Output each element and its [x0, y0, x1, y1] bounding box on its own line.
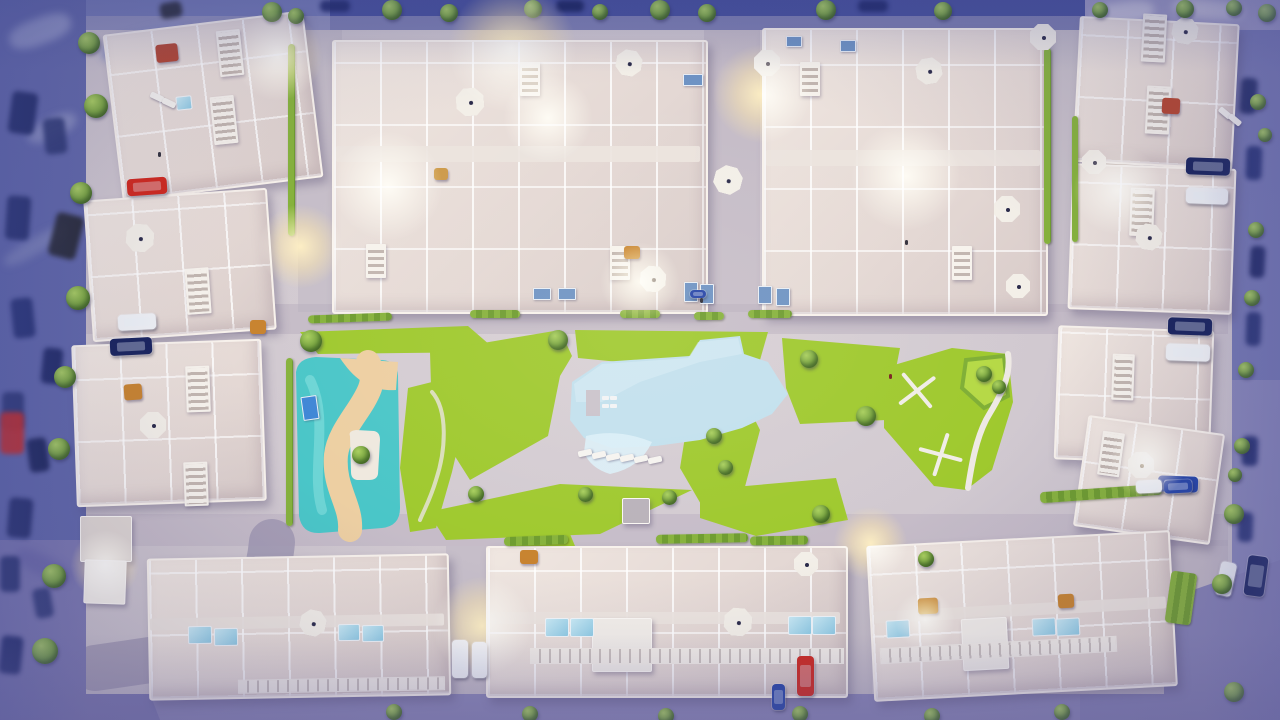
carb-sprite: [159, 0, 183, 20]
lounger-sprite: [578, 449, 593, 458]
table-sprite: [624, 246, 640, 259]
tree-sprite: [1212, 574, 1232, 594]
tree-sprite: [66, 286, 90, 310]
car-sprite: [110, 337, 153, 356]
tree-sprite: [1248, 222, 1264, 238]
carb-sprite: [10, 297, 36, 339]
tree-sprite: [1258, 128, 1272, 142]
hedge-sprite: [750, 535, 808, 545]
tree-sprite: [352, 446, 370, 464]
tree-sprite: [32, 638, 58, 664]
tree-sprite: [1224, 504, 1244, 524]
table-sprite: [520, 550, 538, 564]
hedge-sprite: [748, 310, 792, 318]
umb-sprite: [1128, 452, 1154, 478]
carb-sprite: [1245, 146, 1262, 181]
tree-sprite: [1234, 438, 1250, 454]
lounger-sprite: [592, 451, 607, 460]
tree-sprite: [1092, 2, 1108, 18]
step-sprite: [610, 396, 617, 400]
stair-sprite: [520, 62, 540, 96]
walk-sprite: [766, 150, 1040, 166]
tree-sprite: [468, 486, 484, 502]
stair-sprite: [952, 246, 972, 280]
car-sprite: [1164, 479, 1193, 493]
lounger-sprite: [620, 454, 635, 463]
panel-sprite: [683, 74, 703, 86]
car-sprite: [690, 290, 706, 298]
ppool-sprite: [812, 616, 836, 635]
ppool-sprite: [175, 95, 192, 111]
box-sprite: [83, 559, 127, 604]
hedge-sprite: [286, 358, 293, 526]
carb-sprite: [32, 587, 55, 620]
panel-sprite: [758, 286, 772, 304]
table-sprite: [123, 383, 142, 400]
car-sprite: [118, 313, 157, 331]
car-sprite: [1166, 343, 1211, 362]
car-sprite: [1186, 187, 1229, 204]
tree-sprite: [288, 8, 304, 24]
car-sprite: [1168, 317, 1213, 336]
car-sprite: [472, 642, 487, 678]
ppool-sprite: [788, 616, 812, 635]
table-sprite: [1162, 98, 1181, 115]
tree-sprite: [924, 708, 940, 720]
stair-sprite: [210, 95, 239, 145]
tree-sprite: [1244, 290, 1260, 306]
car-sprite: [797, 656, 814, 696]
tree-sprite: [792, 706, 808, 720]
box-sprite: [622, 498, 650, 524]
jack-sprite: [914, 428, 968, 482]
tree-sprite: [718, 460, 733, 475]
tree-sprite: [856, 406, 876, 426]
tree-sprite: [1176, 0, 1194, 18]
lounger-sprite: [648, 456, 663, 465]
aerial-render-scene: [0, 0, 1280, 720]
panel-sprite: [558, 288, 576, 300]
carb-sprite: [556, 0, 584, 12]
tree-sprite: [976, 366, 992, 382]
hedge-sprite: [504, 535, 568, 546]
table-sprite: [918, 597, 939, 614]
stair-sprite: [185, 366, 211, 413]
carb-sprite: [6, 497, 33, 539]
ppool-sprite: [1032, 617, 1057, 636]
car-sprite: [126, 177, 167, 197]
tree-sprite: [84, 94, 108, 118]
carb-sprite: [4, 195, 31, 241]
umb-sprite: [754, 50, 780, 76]
dot-sprite: [905, 240, 908, 245]
tree-sprite: [522, 706, 538, 720]
table-sprite: [1058, 594, 1075, 609]
ppool-sprite: [338, 624, 360, 641]
car-sprite: [1136, 479, 1163, 493]
tree-sprite: [662, 490, 677, 505]
stair-sprite: [800, 62, 820, 96]
hedge-sprite: [1072, 116, 1078, 242]
carb-sprite: [320, 0, 350, 12]
panel-sprite: [533, 288, 551, 300]
jack-sprite: [891, 365, 942, 416]
bld-sprite: [83, 188, 276, 342]
tree-sprite: [658, 708, 674, 720]
hedge-sprite: [656, 533, 748, 544]
hedge-sprite: [308, 313, 392, 324]
tree-sprite: [262, 2, 282, 22]
hedge-sprite: [1165, 570, 1198, 625]
tree-sprite: [934, 2, 952, 20]
panel-sprite: [776, 288, 790, 306]
blob-sprite: [5, 8, 74, 54]
hedge-sprite: [470, 310, 520, 318]
tree-sprite: [1226, 0, 1242, 16]
tree-sprite: [650, 0, 670, 20]
tree-sprite: [1228, 468, 1242, 482]
tree-sprite: [42, 564, 66, 588]
step-sprite: [602, 396, 609, 400]
car-sprite: [772, 684, 785, 710]
tree-sprite: [1250, 94, 1266, 110]
tree-sprite: [1258, 4, 1276, 22]
lounger-sprite: [634, 455, 649, 464]
stair-sprite: [366, 244, 386, 278]
carb-sprite: [1249, 246, 1266, 279]
panel-sprite: [840, 40, 856, 52]
box-sprite: [80, 516, 132, 562]
tree-sprite: [578, 487, 593, 502]
tree-sprite: [78, 32, 100, 54]
tree-sprite: [1054, 704, 1070, 720]
carb-sprite: [858, 0, 888, 12]
tree-sprite: [48, 438, 70, 460]
dot-sprite: [889, 374, 892, 379]
carb-sprite: [42, 117, 68, 155]
stair-sprite: [1111, 354, 1135, 401]
bld-sprite: [71, 339, 267, 508]
car-sprite: [1186, 157, 1231, 176]
ppool-sprite: [1056, 617, 1081, 636]
sprite-layer: [0, 0, 1280, 720]
lounger-sprite: [606, 453, 621, 462]
step-sprite: [610, 404, 617, 408]
ppool-sprite: [886, 619, 911, 638]
tree-sprite: [300, 330, 322, 352]
panel-sprite: [300, 395, 319, 421]
carb-sprite: [26, 437, 51, 473]
ppool-sprite: [362, 625, 384, 642]
ppool-sprite: [214, 628, 238, 646]
table-sprite: [250, 320, 266, 334]
carb-sprite: [0, 556, 20, 592]
ppool-sprite: [570, 618, 594, 637]
car-sprite: [452, 640, 468, 678]
ppool-sprite: [545, 618, 569, 637]
umb-sprite: [711, 163, 745, 197]
tree-sprite: [592, 4, 608, 20]
tree-sprite: [524, 0, 542, 18]
step-sprite: [602, 404, 609, 408]
tree-sprite: [386, 704, 402, 720]
umb-sprite: [1030, 24, 1056, 50]
tree-sprite: [440, 4, 458, 22]
tree-sprite: [992, 380, 1006, 394]
tree-sprite: [382, 0, 402, 20]
dot-sprite: [700, 298, 703, 303]
carb-sprite: [0, 635, 24, 675]
tree-sprite: [54, 366, 76, 388]
stair-sprite: [184, 267, 211, 315]
carb-sprite: [1245, 312, 1261, 347]
car-sprite: [1243, 555, 1268, 597]
ppool-sprite: [188, 626, 212, 644]
stair-sprite: [1141, 13, 1167, 62]
tree-sprite: [548, 330, 568, 350]
tree-sprite: [70, 182, 92, 204]
stair-sprite: [183, 462, 209, 507]
tree-sprite: [816, 0, 836, 20]
hedge-sprite: [288, 44, 295, 236]
tree-sprite: [1238, 362, 1254, 378]
tree-sprite: [812, 505, 830, 523]
table-sprite: [434, 168, 448, 180]
carb-sprite: [0, 412, 24, 454]
panel-sprite: [786, 36, 802, 47]
tree-sprite: [698, 4, 716, 22]
table-sprite: [155, 43, 179, 63]
dot-sprite: [158, 152, 161, 157]
stair-sprite: [216, 29, 245, 77]
hedge-sprite: [1044, 48, 1051, 244]
tree-sprite: [800, 350, 818, 368]
tree-sprite: [706, 428, 722, 444]
walk-sprite: [336, 146, 700, 162]
tree-sprite: [918, 551, 934, 567]
hedge-sprite: [694, 312, 724, 320]
tree-sprite: [1224, 682, 1244, 702]
carb-sprite: [47, 211, 85, 260]
umb-sprite: [994, 196, 1020, 222]
hedge-sprite: [620, 310, 660, 318]
